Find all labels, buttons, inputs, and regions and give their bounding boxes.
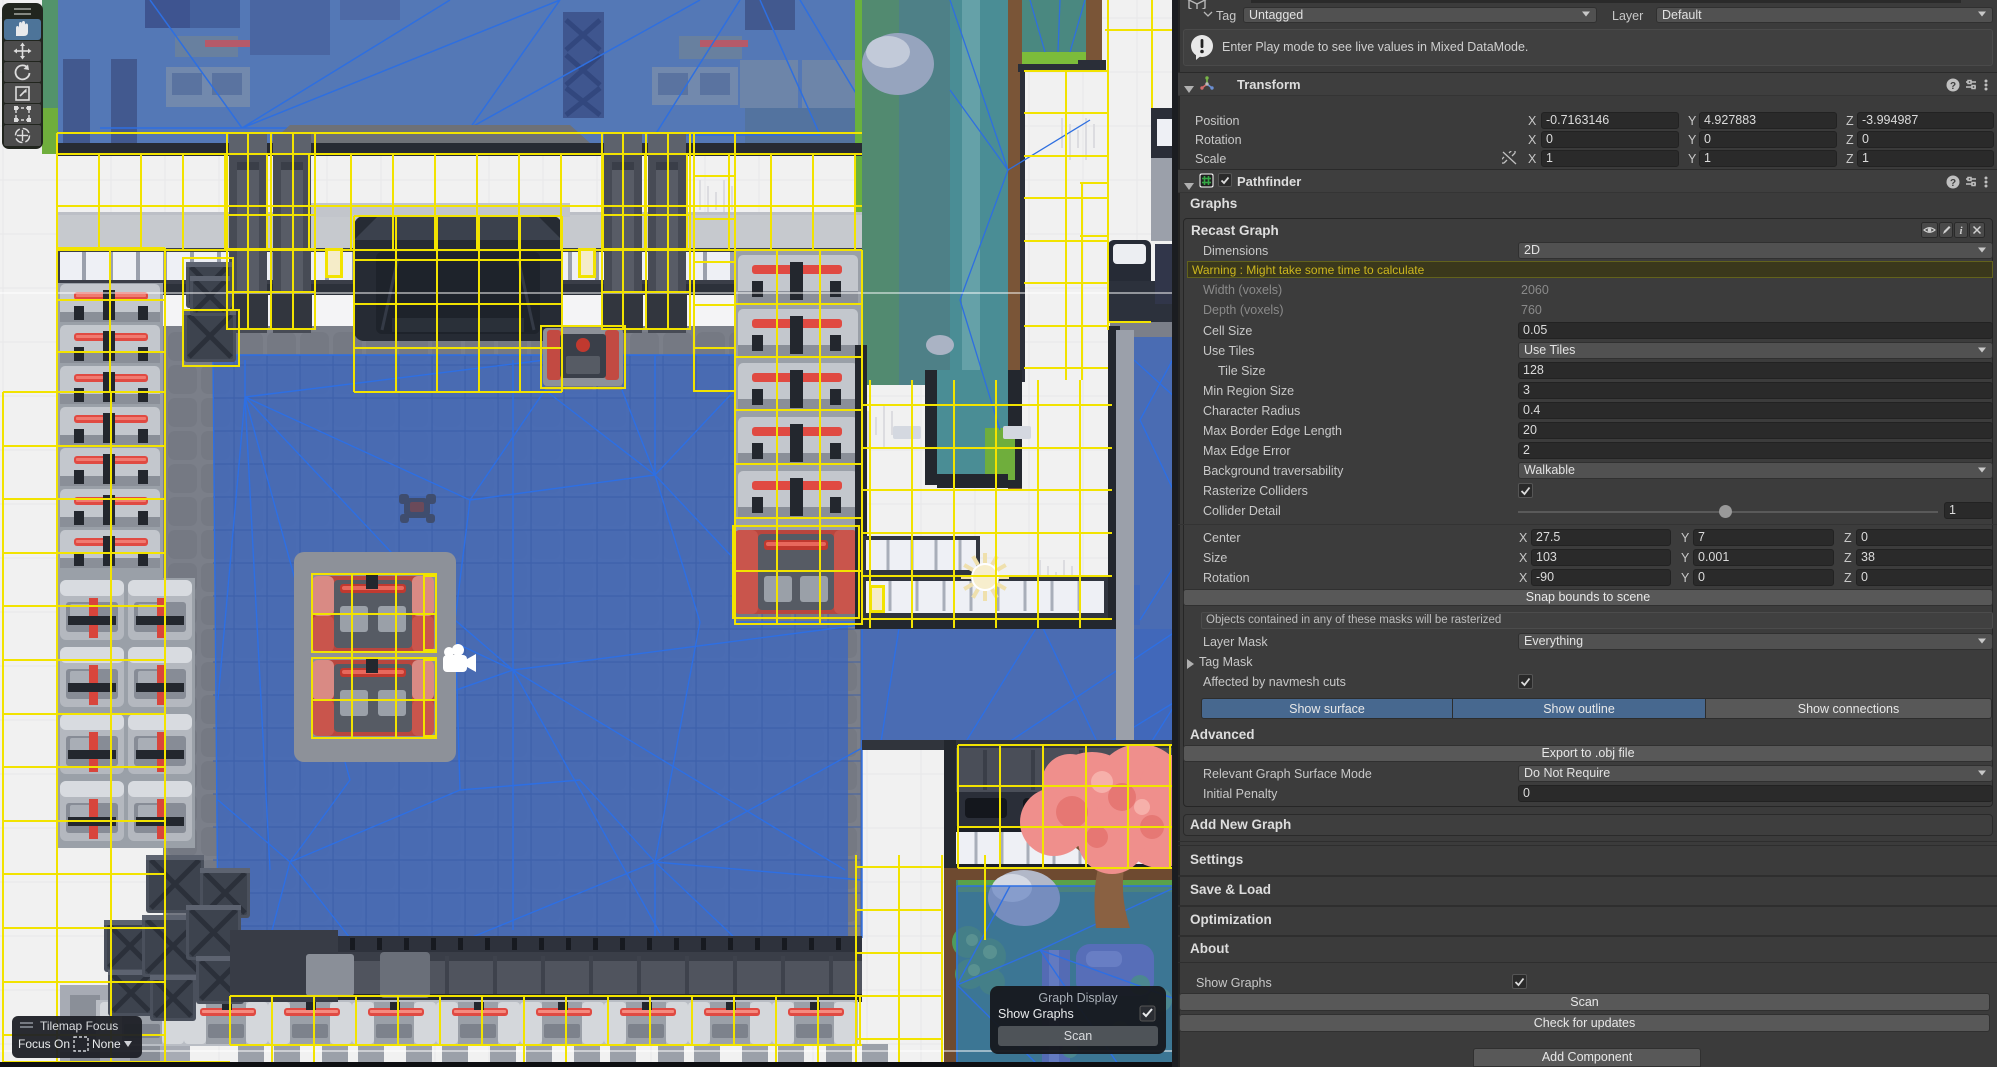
svg-text:Tilemap Focus: Tilemap Focus	[40, 1019, 118, 1033]
svg-text:None: None	[92, 1037, 121, 1051]
svg-text:Show Graphs: Show Graphs	[998, 1007, 1074, 1021]
svg-text:?: ?	[1950, 178, 1956, 189]
svg-text:Scan: Scan	[1064, 1029, 1093, 1043]
svg-text:Focus On: Focus On	[18, 1037, 70, 1051]
svg-text:Graph Display: Graph Display	[1038, 991, 1118, 1005]
svg-text:?: ?	[1950, 81, 1956, 92]
